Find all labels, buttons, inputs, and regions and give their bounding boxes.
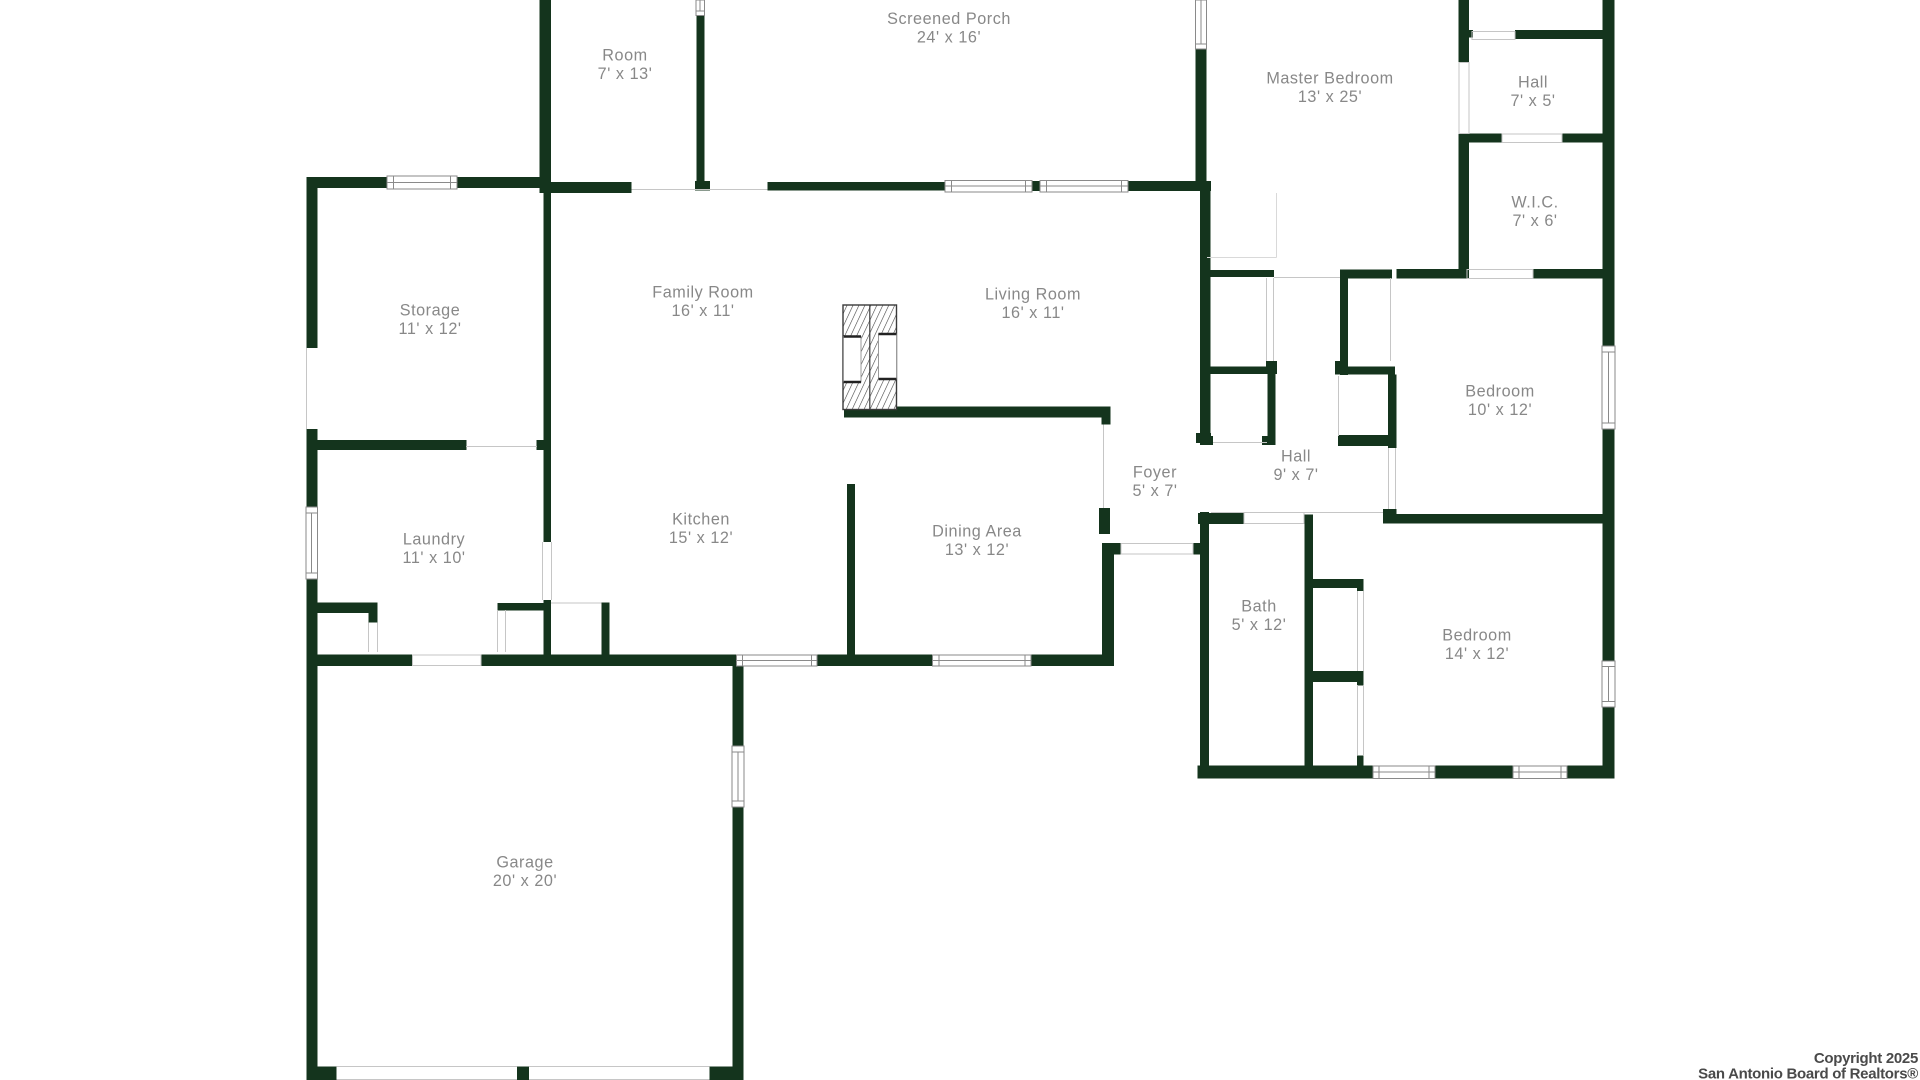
svg-text:Dining Area: Dining Area bbox=[932, 523, 1022, 541]
svg-text:Hall: Hall bbox=[1281, 448, 1311, 466]
svg-text:Bedroom: Bedroom bbox=[1465, 383, 1535, 401]
svg-text:Storage: Storage bbox=[400, 302, 461, 320]
svg-text:Foyer: Foyer bbox=[1133, 464, 1177, 482]
svg-text:Living Room: Living Room bbox=[985, 286, 1081, 304]
svg-text:Bedroom: Bedroom bbox=[1442, 627, 1512, 645]
svg-text:Garage: Garage bbox=[496, 854, 553, 872]
svg-text:20' x 20': 20' x 20' bbox=[493, 872, 557, 890]
svg-text:13' x 25': 13' x 25' bbox=[1298, 88, 1362, 106]
svg-text:7' x 6': 7' x 6' bbox=[1512, 212, 1557, 230]
svg-text:9' x 7': 9' x 7' bbox=[1273, 466, 1318, 484]
svg-text:5' x 7': 5' x 7' bbox=[1132, 482, 1177, 500]
svg-text:16' x 11': 16' x 11' bbox=[1001, 304, 1064, 322]
svg-text:Family Room: Family Room bbox=[652, 284, 753, 302]
svg-text:14' x 12': 14' x 12' bbox=[1445, 645, 1509, 663]
svg-text:Laundry: Laundry bbox=[403, 531, 466, 549]
svg-text:24' x 16': 24' x 16' bbox=[917, 29, 981, 47]
svg-text:Kitchen: Kitchen bbox=[672, 511, 730, 529]
svg-text:10' x 12': 10' x 12' bbox=[1468, 401, 1532, 419]
svg-text:13' x 12': 13' x 12' bbox=[945, 541, 1009, 559]
svg-text:Screened Porch: Screened Porch bbox=[887, 10, 1011, 28]
svg-text:W.I.C.: W.I.C. bbox=[1511, 194, 1558, 212]
svg-text:Master Bedroom: Master Bedroom bbox=[1266, 70, 1393, 88]
svg-text:7' x 13': 7' x 13' bbox=[598, 65, 653, 83]
svg-text:5' x 12': 5' x 12' bbox=[1232, 616, 1287, 634]
svg-text:Bath: Bath bbox=[1241, 598, 1277, 616]
svg-text:Copyright 2025: Copyright 2025 bbox=[1814, 1050, 1918, 1067]
svg-text:11' x 12': 11' x 12' bbox=[398, 320, 461, 338]
svg-text:San Antonio Board of Realtors®: San Antonio Board of Realtors® bbox=[1698, 1066, 1918, 1080]
svg-text:Hall: Hall bbox=[1518, 74, 1548, 92]
svg-text:16' x 11': 16' x 11' bbox=[671, 302, 734, 320]
svg-text:11' x 10': 11' x 10' bbox=[402, 549, 465, 567]
svg-text:15' x 12': 15' x 12' bbox=[669, 529, 733, 547]
svg-text:Room: Room bbox=[602, 47, 647, 65]
svg-text:7' x 5': 7' x 5' bbox=[1510, 92, 1555, 110]
